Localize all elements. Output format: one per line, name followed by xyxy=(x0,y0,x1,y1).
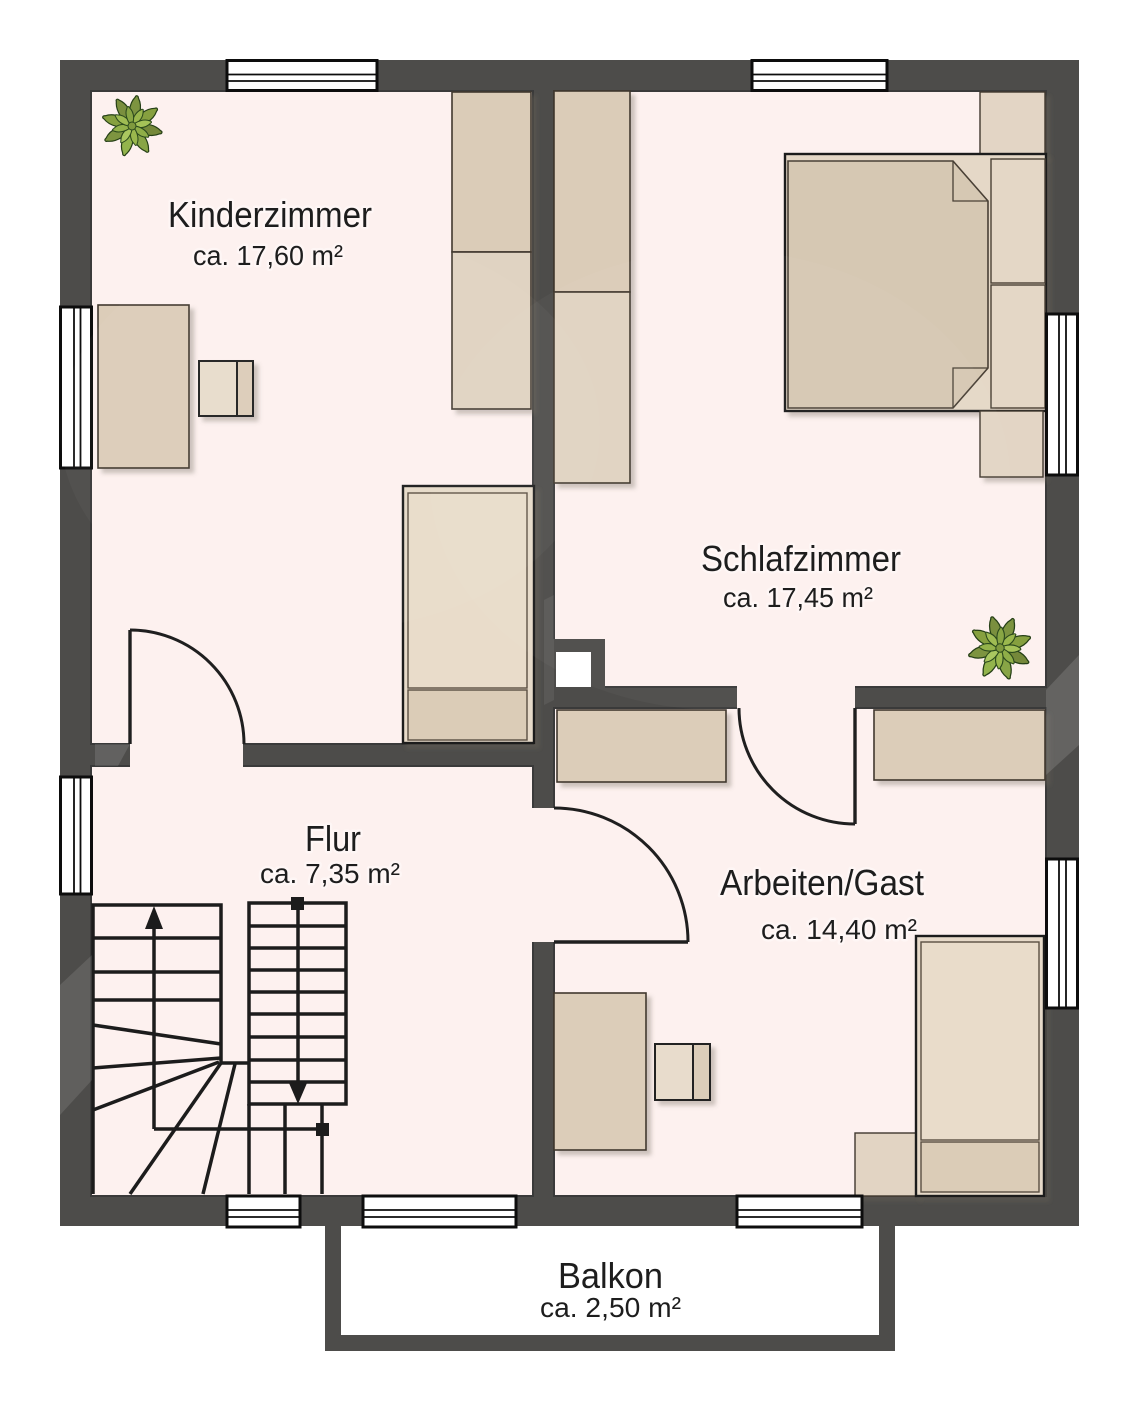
svg-text:Schlafzimmer: Schlafzimmer xyxy=(701,538,901,579)
svg-text:ca. 2,50 m²: ca. 2,50 m² xyxy=(540,1292,681,1323)
svg-text:ca. 14,40 m²: ca. 14,40 m² xyxy=(761,914,917,945)
svg-text:Kinderzimmer: Kinderzimmer xyxy=(168,194,372,235)
svg-text:ca. 17,60 m²: ca. 17,60 m² xyxy=(193,240,343,271)
svg-text:ca. 7,35 m²: ca. 7,35 m² xyxy=(260,858,400,889)
svg-text:Balkon: Balkon xyxy=(558,1255,663,1296)
svg-text:Flur: Flur xyxy=(305,818,361,859)
svg-text:Arbeiten/Gast: Arbeiten/Gast xyxy=(720,862,924,903)
svg-text:ca. 17,45 m²: ca. 17,45 m² xyxy=(723,582,873,613)
